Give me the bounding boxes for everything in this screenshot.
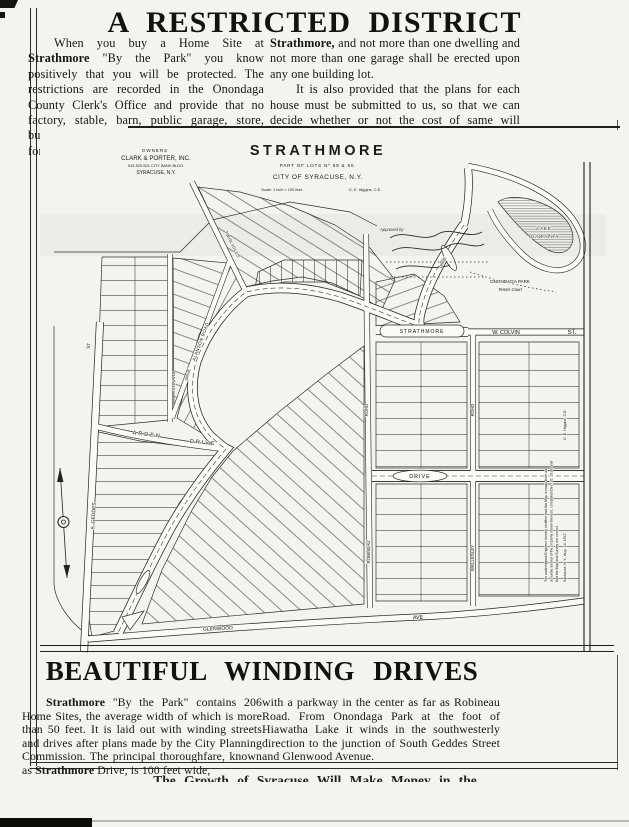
map-label-lake-line1: LAKE [536, 226, 551, 231]
map-label-owners-name: CLARK & PORTER, INC. [121, 155, 191, 162]
map-label-street-wellesley-road: ROAD [470, 404, 475, 417]
map-label-owners-heading: OWNERS [142, 148, 168, 153]
map-label-owners-city: SYRACUSE, N.Y. [136, 170, 175, 176]
scan-bottom-bar [0, 818, 92, 827]
map-label-owners-address: 519-520-521 CITY BANK BLDG. [128, 163, 184, 168]
map-label-plat-engineer: G. E. Higgins, C.E. [349, 187, 382, 192]
map-label-street-stinard: STINARD [171, 371, 176, 390]
plat-map: OWNERSCLARK & PORTER, INC.519-520-521 CI… [40, 130, 620, 655]
map-label-cert-signature: C. E. Higgins, C.E. [563, 409, 567, 440]
map-label-street-wellesley: WELLESLEY [470, 545, 475, 571]
page-title: A RESTRICTED DISTRICT [0, 6, 629, 40]
map-label-lake-line2: HIAWATHA [529, 234, 560, 239]
map-label-street-glenwood-ave: AVE [413, 615, 424, 622]
lower-left-column: Strathmore "By the Park" contains 206 Ho… [22, 696, 262, 777]
scanned-advertisement-page: A RESTRICTED DISTRICT When you buy a Hom… [0, 0, 629, 827]
lot-block-west-upper [96, 257, 168, 427]
cutoff-text-line: The Growth of Syracuse Will Make Money i… [130, 773, 500, 782]
map-label-street-robineau-road: ROAD [364, 404, 369, 417]
map-label-cert-line2: accurate survey of the property shown th… [550, 461, 554, 582]
map-label-plat-city: CITY OF SYRACUSE, N.Y. [273, 174, 363, 181]
intro-right-column: Strathmore, and not more than one dwelli… [270, 36, 520, 144]
map-label-street-w-colvin-st: ST. [568, 329, 577, 336]
map-label-plat-title: STRATHMORE [250, 143, 386, 159]
intro-right-paragraph-1: Strathmore, and not more than one dwelli… [270, 36, 520, 82]
map-label-cert-date: Syracuse, N.Y., Aug. 14, 1917. [563, 532, 567, 582]
map-label-plat-scale: Scale: 1 inch = 100 feet. [261, 187, 303, 192]
lower-right-column: with a parkway in the center as far as R… [262, 696, 500, 764]
section-heading: BEAUTIFUL WINDING DRIVES [0, 656, 524, 687]
map-label-cert-line1: The undersigned Engineer hereby certifie… [544, 469, 548, 582]
map-label-approved-by: Approved by [379, 227, 404, 232]
map-label-street-robineau: ROBINEAU [366, 541, 371, 564]
lot-block-grid-nw [376, 342, 467, 468]
scan-bottom-line [92, 820, 629, 822]
map-label-street-w-colvin: W. COLVIN [492, 330, 520, 336]
lot-block-grid-sw [376, 484, 467, 601]
map-label-park-line1: ONONDAGA PARK [490, 279, 531, 284]
map-label-street-central-drive: DRIVE [409, 474, 430, 480]
map-label-cert-line3: that the Map and Survey are correct. [555, 525, 559, 582]
map-label-street-strathmore-pill: STRATHMORE [400, 329, 445, 335]
map-label-street-st: ST [86, 343, 91, 349]
map-label-park-line2: Tennis Court [498, 287, 522, 292]
map-label-plat-subtitle: PART OF LOTS Nº 89 & 90. [280, 163, 357, 168]
